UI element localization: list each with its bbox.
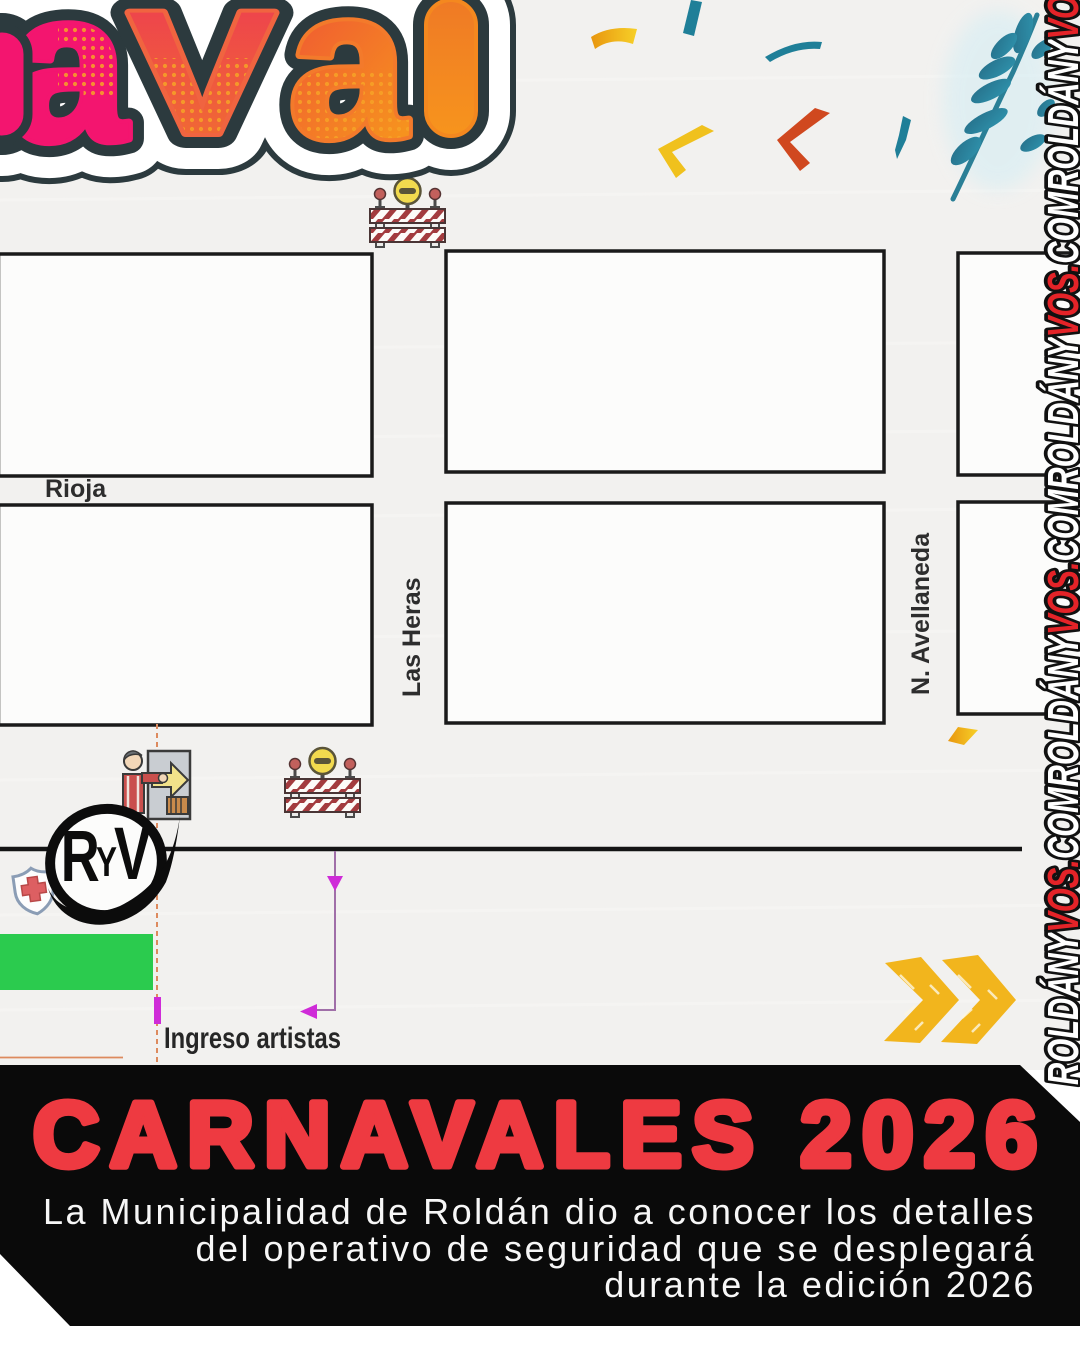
svg-text:Las Heras: Las Heras bbox=[398, 577, 426, 697]
svg-text:V: V bbox=[114, 812, 151, 895]
svg-text:Rioja: Rioja bbox=[45, 475, 107, 503]
svg-text:del operativo de seguridad que: del operativo de seguridad que se desple… bbox=[195, 1228, 1036, 1269]
svg-text:Ingreso artistas: Ingreso artistas bbox=[164, 1022, 341, 1055]
svg-text:durante la edición 2026: durante la edición 2026 bbox=[604, 1264, 1036, 1305]
svg-text:La Municipalidad de Roldán dio: La Municipalidad de Roldán dio a conocer… bbox=[43, 1191, 1036, 1232]
svg-text:R: R bbox=[61, 817, 100, 897]
svg-text:CARNAVALES 2026: CARNAVALES 2026 bbox=[33, 1084, 1048, 1186]
svg-text:ROLDÁNYVOS.COMROLDÁNYVOS.COMRO: ROLDÁNYVOS.COMROLDÁNYVOS.COMROLDÁNYVOS.C… bbox=[1037, 0, 1080, 1085]
svg-text:N. Avellaneda: N. Avellaneda bbox=[907, 532, 935, 695]
